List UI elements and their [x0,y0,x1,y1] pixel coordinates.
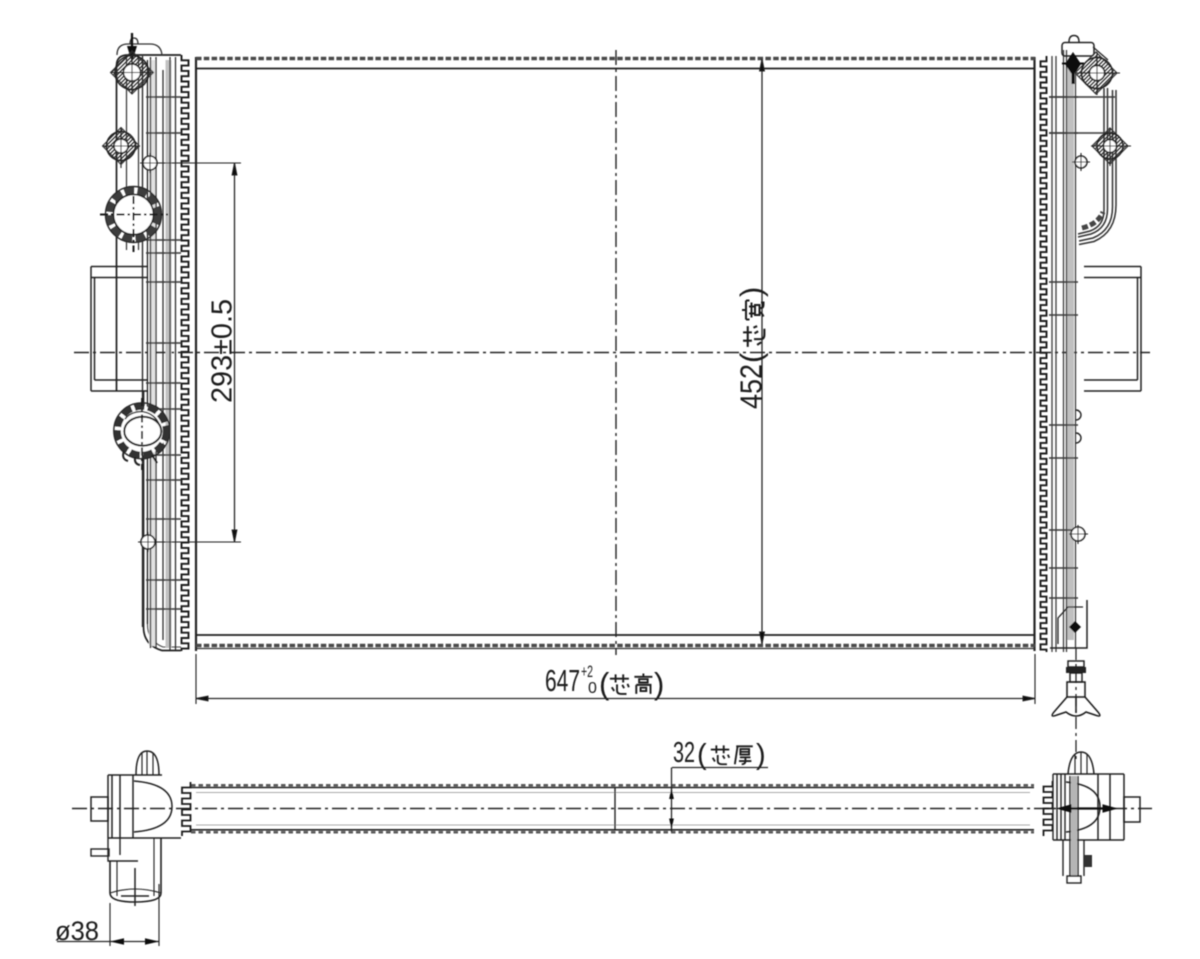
svg-text:452: 452 [734,364,769,409]
svg-text:+2: +2 [581,662,593,681]
svg-text:): ) [654,666,664,701]
svg-text:(: ( [697,739,707,771]
svg-text:): ) [756,739,766,771]
svg-text:647: 647 [545,663,580,698]
svg-text:32: 32 [673,737,695,769]
svg-text:): ) [734,287,769,297]
svg-text:(: ( [599,666,610,701]
svg-text:(: ( [734,352,769,363]
svg-text:0: 0 [588,680,597,697]
svg-text:293±0.5: 293±0.5 [207,299,239,403]
svg-text:ø38: ø38 [55,916,99,946]
